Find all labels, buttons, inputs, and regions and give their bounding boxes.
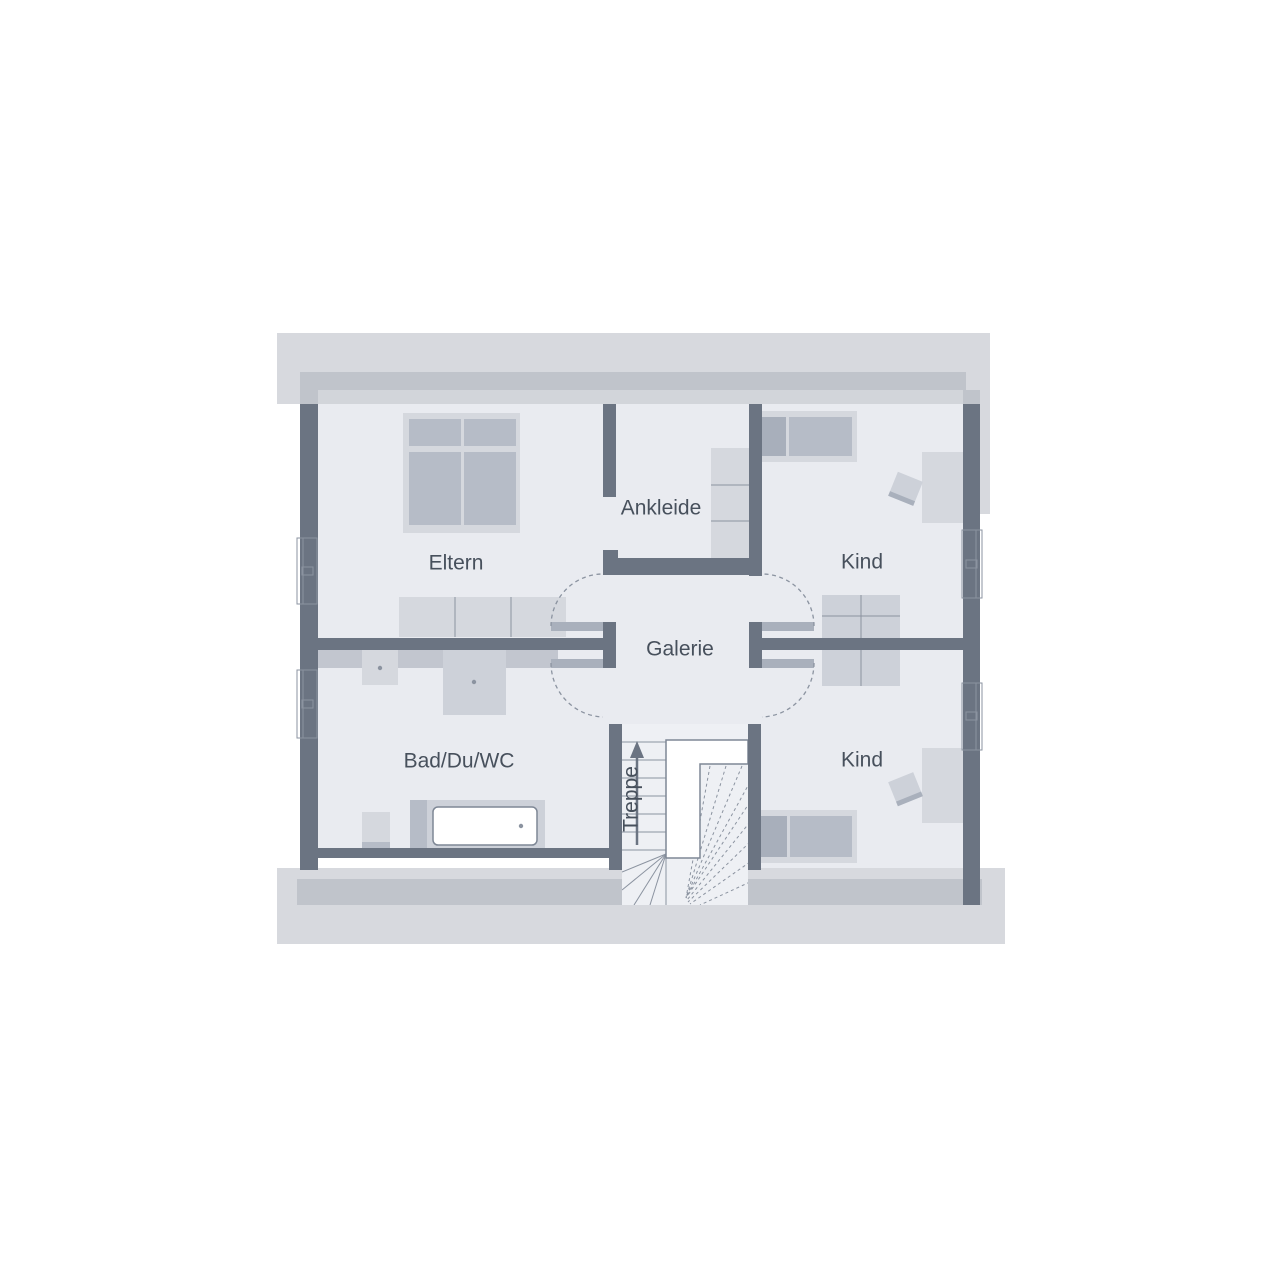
door-leaf-kind-bottom bbox=[762, 659, 814, 668]
wardrobe-ankleide bbox=[711, 448, 749, 558]
room-label-eltern: Eltern bbox=[429, 553, 484, 574]
exterior-wall-left bbox=[300, 404, 318, 870]
bed-mattress bbox=[790, 816, 852, 857]
wall-stair-east bbox=[748, 724, 761, 870]
door-leaf-bad bbox=[551, 659, 603, 668]
room-label-galerie: Galerie bbox=[646, 639, 714, 660]
bed-pillow bbox=[464, 419, 516, 446]
wall-ankleide-south bbox=[603, 558, 762, 575]
bed-pillow bbox=[761, 816, 787, 857]
wall-ankleide-east bbox=[749, 404, 762, 576]
bath-counter bbox=[318, 648, 558, 668]
table-kind-bottom bbox=[822, 650, 900, 686]
room-label-treppe: Treppe bbox=[621, 766, 642, 832]
desk-kind-bottom bbox=[922, 748, 963, 823]
bathtub bbox=[410, 800, 545, 851]
door-leaf-kind-top bbox=[762, 622, 814, 631]
exterior-wall-right bbox=[963, 404, 980, 905]
wall-divider-west bbox=[300, 638, 603, 650]
bed-kind-top bbox=[756, 411, 857, 462]
desk-kind-top bbox=[922, 452, 963, 523]
room-label-bad-du-wc: Bad/Du/WC bbox=[404, 751, 515, 772]
bed-mattress bbox=[464, 452, 516, 525]
bed-pillow bbox=[409, 419, 461, 446]
room-label-kind-top: Kind bbox=[841, 552, 883, 573]
shower-drain-dot bbox=[472, 680, 476, 684]
door-leaf-eltern bbox=[551, 622, 603, 631]
bed-pillow bbox=[761, 417, 786, 456]
room-label-ankleide: Ankleide bbox=[621, 498, 702, 519]
floor-plan-drawing bbox=[0, 0, 1280, 1280]
tub-drain-dot bbox=[519, 824, 523, 828]
sink-drain-dot bbox=[378, 666, 382, 670]
roof-gable-left bbox=[277, 333, 301, 404]
bed-eltern bbox=[403, 413, 520, 533]
floor-plan-page: Eltern Ankleide Kind Galerie Bad/Du/WC K… bbox=[0, 0, 1280, 1280]
dresser-eltern bbox=[399, 597, 566, 637]
toilet bbox=[362, 812, 390, 851]
table-kind-top bbox=[822, 595, 900, 638]
bed-mattress bbox=[789, 417, 852, 456]
wall-bath-south bbox=[300, 848, 609, 858]
bed-mattress bbox=[409, 452, 461, 525]
bath-south-gap bbox=[318, 858, 609, 868]
wall-stub-galerie-west bbox=[603, 622, 616, 668]
room-label-kind-bottom: Kind bbox=[841, 750, 883, 771]
bed-kind-bottom bbox=[756, 810, 857, 863]
wall-ankleide-west bbox=[603, 404, 616, 497]
wall-stub-galerie-east bbox=[749, 622, 762, 668]
wall-divider-east bbox=[762, 638, 963, 650]
